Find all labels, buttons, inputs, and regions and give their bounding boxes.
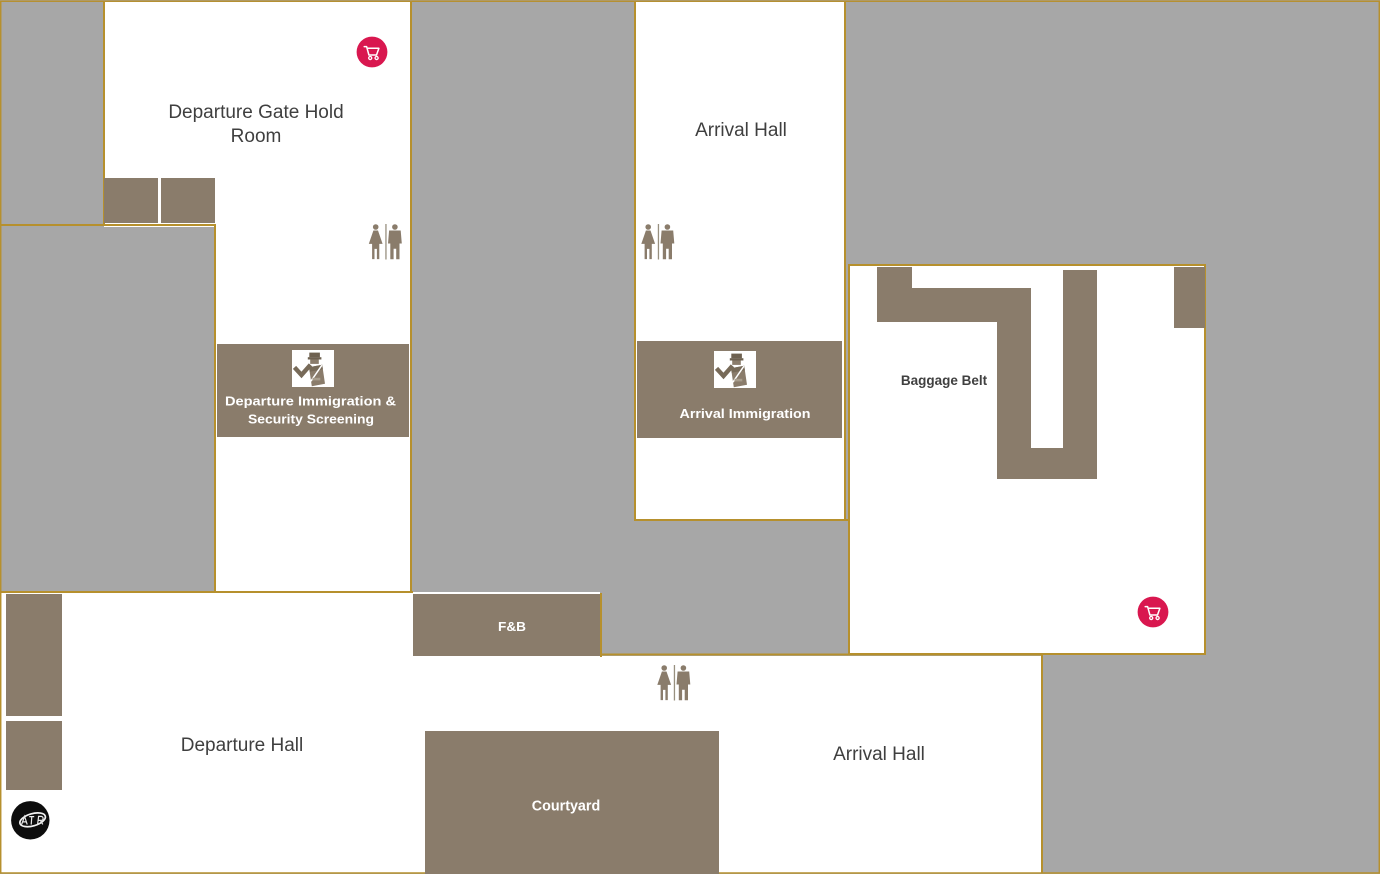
svg-text:Departure Immigration &: Departure Immigration &	[225, 395, 396, 409]
svg-text:Security Screening: Security Screening	[248, 413, 374, 427]
svg-text:Departure Gate Hold: Departure Gate Hold	[168, 102, 343, 123]
svg-text:Courtyard: Courtyard	[532, 799, 601, 815]
svg-text:Room: Room	[231, 126, 282, 147]
svg-text:Departure Hall: Departure Hall	[181, 735, 304, 756]
svg-text:F&B: F&B	[498, 620, 526, 634]
svg-text:Arrival Hall: Arrival Hall	[833, 744, 925, 765]
svg-text:Arrival Hall: Arrival Hall	[695, 120, 787, 141]
svg-text:Baggage Belt: Baggage Belt	[901, 373, 988, 388]
svg-text:Arrival Immigration: Arrival Immigration	[680, 407, 811, 421]
